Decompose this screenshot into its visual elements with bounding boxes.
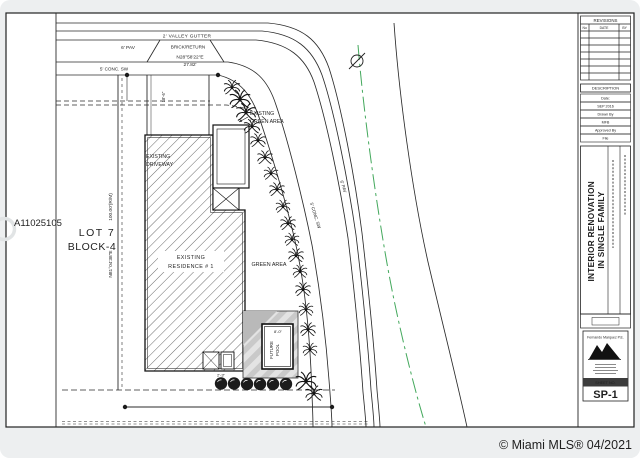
green-top-label-line1: EXISTING <box>250 111 274 117</box>
mls-copyright-watermark: © Miami MLS® 04/2021 <box>499 438 632 452</box>
info-row-file-label: File <box>603 137 609 141</box>
info-row-date-value: SEP 2016 <box>597 105 614 109</box>
street-label-pav-top: 6' PAV <box>121 45 136 51</box>
dim-pool-width: 8'-0" <box>274 329 283 334</box>
driveway-label-line1: EXISTING <box>146 154 170 160</box>
boundary-length: 100.00'(R/M) <box>108 193 114 221</box>
info-row-approvedby-label: Approved By <box>595 129 616 133</box>
project-title-line2: IN SINGLE FAMILY <box>597 191 606 269</box>
street-label-valley-gutter: 2' VALLEY GUTTER <box>163 34 212 40</box>
street-label-brick-return: BRICK/RETURN <box>171 45 205 50</box>
residence-label-line2: RESIDENCE # 1 <box>168 264 214 270</box>
description-label: DESCRIPTION <box>592 86 619 91</box>
equipment-boxes <box>203 352 234 369</box>
shrub-icon <box>215 377 227 389</box>
site-plan-svg: A11025105 <box>0 0 640 458</box>
sheet-number: SP-1 <box>593 389 617 401</box>
residence-label-line1: EXISTING <box>177 255 205 261</box>
site-plan-screenshot: A11025105 <box>0 0 640 458</box>
lot-number: LOT 7 <box>79 227 116 239</box>
street-label-distance: 27.82' <box>184 62 197 68</box>
shrub-icon <box>280 378 292 390</box>
patio-x-box <box>213 188 239 210</box>
pool-label-line2: POOL <box>275 343 280 356</box>
revisions-col-date: DATE <box>600 26 610 30</box>
revisions-title: REVISIONS <box>594 18 618 23</box>
entry-porch <box>213 125 249 188</box>
revisions-col-no: No <box>583 26 587 30</box>
street-label-conc-sw-top: 5' CONC. SW <box>100 67 129 72</box>
green-area-label: GREEN AREA <box>251 262 286 268</box>
shrub-icon <box>267 378 279 390</box>
dim-equipment: 2'-3" <box>217 373 226 378</box>
info-row-drawnby-label: Drawn By <box>598 113 614 117</box>
pool-label-line1: FUTURE <box>269 341 274 359</box>
shrub-icon <box>228 377 240 389</box>
dim-driveway-depth: 18'-6" <box>161 91 166 102</box>
driveway-label-line2: DRIVEWAY <box>146 162 174 168</box>
info-row-drawnby-value: MFB <box>602 121 610 125</box>
shrub-icon <box>254 378 266 390</box>
project-title: INTERIOR RENOVATION IN SINGLE FAMILY <box>587 178 606 281</box>
project-title-line1: INTERIOR RENOVATION <box>587 181 596 281</box>
green-top-label-line2: GREEN AREA <box>250 119 284 125</box>
shrub-icon <box>241 378 253 390</box>
info-row-date-label: Date: <box>601 97 610 101</box>
street-label-bearing: N28°58'22"E <box>176 55 203 61</box>
sheet-no-label: SHEET NO. <box>595 381 615 385</box>
firm-name: Fernando Marquez P.E. <box>587 336 624 340</box>
boundary-bearing: N81°04'38"E <box>108 250 114 277</box>
revisions-col-by: BY <box>622 26 627 30</box>
mls-id-watermark: A11025105 <box>14 218 62 229</box>
